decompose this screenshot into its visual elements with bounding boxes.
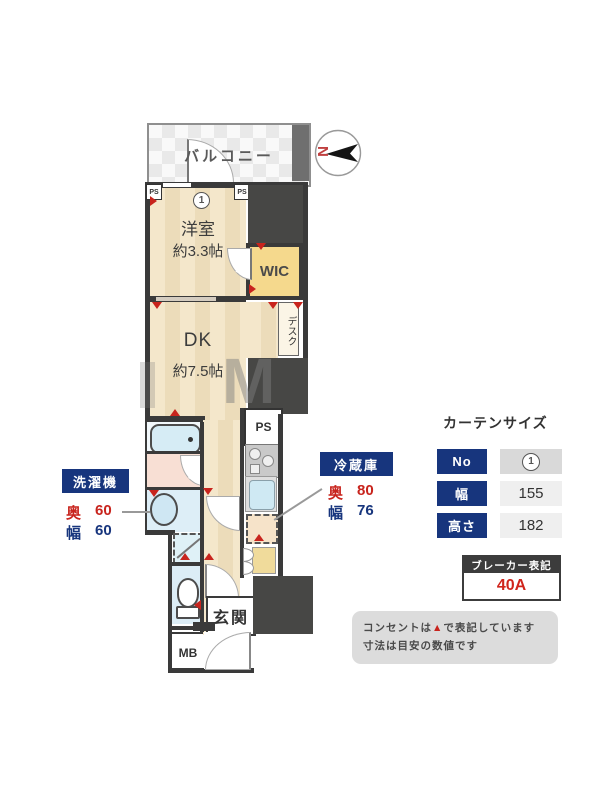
genkan-label: 玄関: [213, 604, 249, 628]
note-line1-pre: コンセントは: [363, 622, 432, 634]
depth-value: 80: [357, 482, 374, 503]
ps-label: PS: [149, 189, 158, 196]
shoe-cabinet: [252, 547, 276, 574]
compass: N: [313, 128, 363, 178]
outlet-marker: [150, 196, 157, 206]
breaker-value: 40A: [464, 573, 559, 599]
breaker-box: ブレーカー表記 40A: [462, 555, 561, 601]
sliding-door-bedroom-dk: [156, 297, 216, 301]
ps-label: PS: [237, 189, 246, 196]
width-value: 76: [357, 502, 374, 523]
kitchen-stove: [245, 444, 279, 478]
genkan-step: [193, 622, 215, 631]
mb-box: MB: [170, 632, 206, 673]
depth-value: 60: [95, 502, 112, 523]
outlet-marker: [204, 553, 214, 560]
row-label: 幅: [455, 484, 469, 503]
row-label: 高さ: [448, 516, 476, 535]
kitchen-sink: [249, 480, 275, 510]
row-value: 1: [528, 456, 534, 467]
circled-number: 1: [522, 453, 540, 471]
room-balcony: バルコニー: [147, 123, 311, 187]
note-outlet-marker: ▲: [432, 622, 443, 634]
curtain-row-height-value: 182: [500, 513, 562, 538]
depth-label: 奥: [66, 502, 81, 523]
note-line1-post: で表記しています: [443, 622, 535, 634]
depth-label: 奥: [328, 482, 343, 503]
bathtub: [150, 424, 201, 454]
row-value: 155: [518, 485, 543, 502]
fridge-tag-label: 冷蔵庫: [334, 455, 379, 474]
fridge-depth-row: 奥 80: [328, 482, 374, 503]
compass-north-label: N: [314, 146, 331, 157]
curtain-row-width-label: 幅: [437, 481, 487, 506]
floorplan-canvas: バルコニー PS PS 1 洋室 約3.3帖 WIC DK 約7.5帖 デスク …: [0, 0, 600, 800]
width-label: 幅: [328, 502, 343, 523]
outlet-marker: [194, 600, 201, 610]
curtain-row-height-label: 高さ: [437, 513, 487, 538]
fridge-tag: 冷蔵庫: [320, 452, 393, 476]
desk-label: デスク: [285, 316, 296, 346]
outlet-marker: [293, 302, 303, 309]
curtain-row-width-value: 155: [500, 481, 562, 506]
row-value: 182: [518, 517, 543, 534]
balcony-label: バルコニー: [149, 145, 309, 166]
outlet-marker: [180, 553, 190, 560]
marker-number: 1: [199, 195, 205, 206]
curtain-row-no-value: 1: [500, 449, 562, 474]
width-label: 幅: [66, 522, 81, 543]
watermark-bar: [140, 362, 155, 408]
row-label: No: [452, 454, 471, 469]
washbasin: [150, 493, 178, 526]
watermark-letter: M: [222, 344, 275, 418]
breaker-title: ブレーカー表記: [464, 557, 559, 573]
washer-leader-line: [122, 511, 150, 513]
outlet-marker: [254, 534, 264, 541]
width-value: 60: [95, 522, 112, 543]
desk-nook: デスク: [278, 302, 299, 356]
window-top: [163, 183, 191, 187]
bedroom-label: 洋室: [150, 215, 246, 240]
wall-right-lower: [278, 414, 283, 576]
washer-tag-label: 洗濯機: [73, 472, 118, 491]
outlet-marker: [256, 243, 266, 250]
curtain-table-title: カーテンサイズ: [443, 413, 548, 433]
washer-width-row: 幅 60: [66, 522, 112, 543]
note-line2: 寸法は目安の数値です: [363, 640, 478, 652]
outlet-marker: [170, 409, 180, 416]
outlet-marker: [268, 302, 278, 309]
curtain-marker-1: 1: [193, 192, 210, 209]
outlet-marker: [203, 488, 213, 495]
structure-block-bottom-right: [253, 576, 313, 634]
outlet-marker: [149, 490, 159, 497]
washer-depth-row: 奥 60: [66, 502, 112, 523]
mb-label: MB: [179, 646, 198, 660]
structure-block-top-right: [248, 185, 303, 243]
wic-label: WIC: [250, 263, 299, 280]
washer-tag: 洗濯機: [62, 469, 129, 493]
legend-note: コンセントは▲で表記しています 寸法は目安の数値です: [352, 611, 558, 664]
outlet-marker: [249, 284, 256, 294]
ps-label: PS: [255, 420, 271, 434]
fridge-width-row: 幅 76: [328, 502, 374, 523]
curtain-row-no-label: No: [437, 449, 487, 474]
room-wic: WIC: [250, 247, 299, 296]
outlet-marker: [152, 302, 162, 309]
